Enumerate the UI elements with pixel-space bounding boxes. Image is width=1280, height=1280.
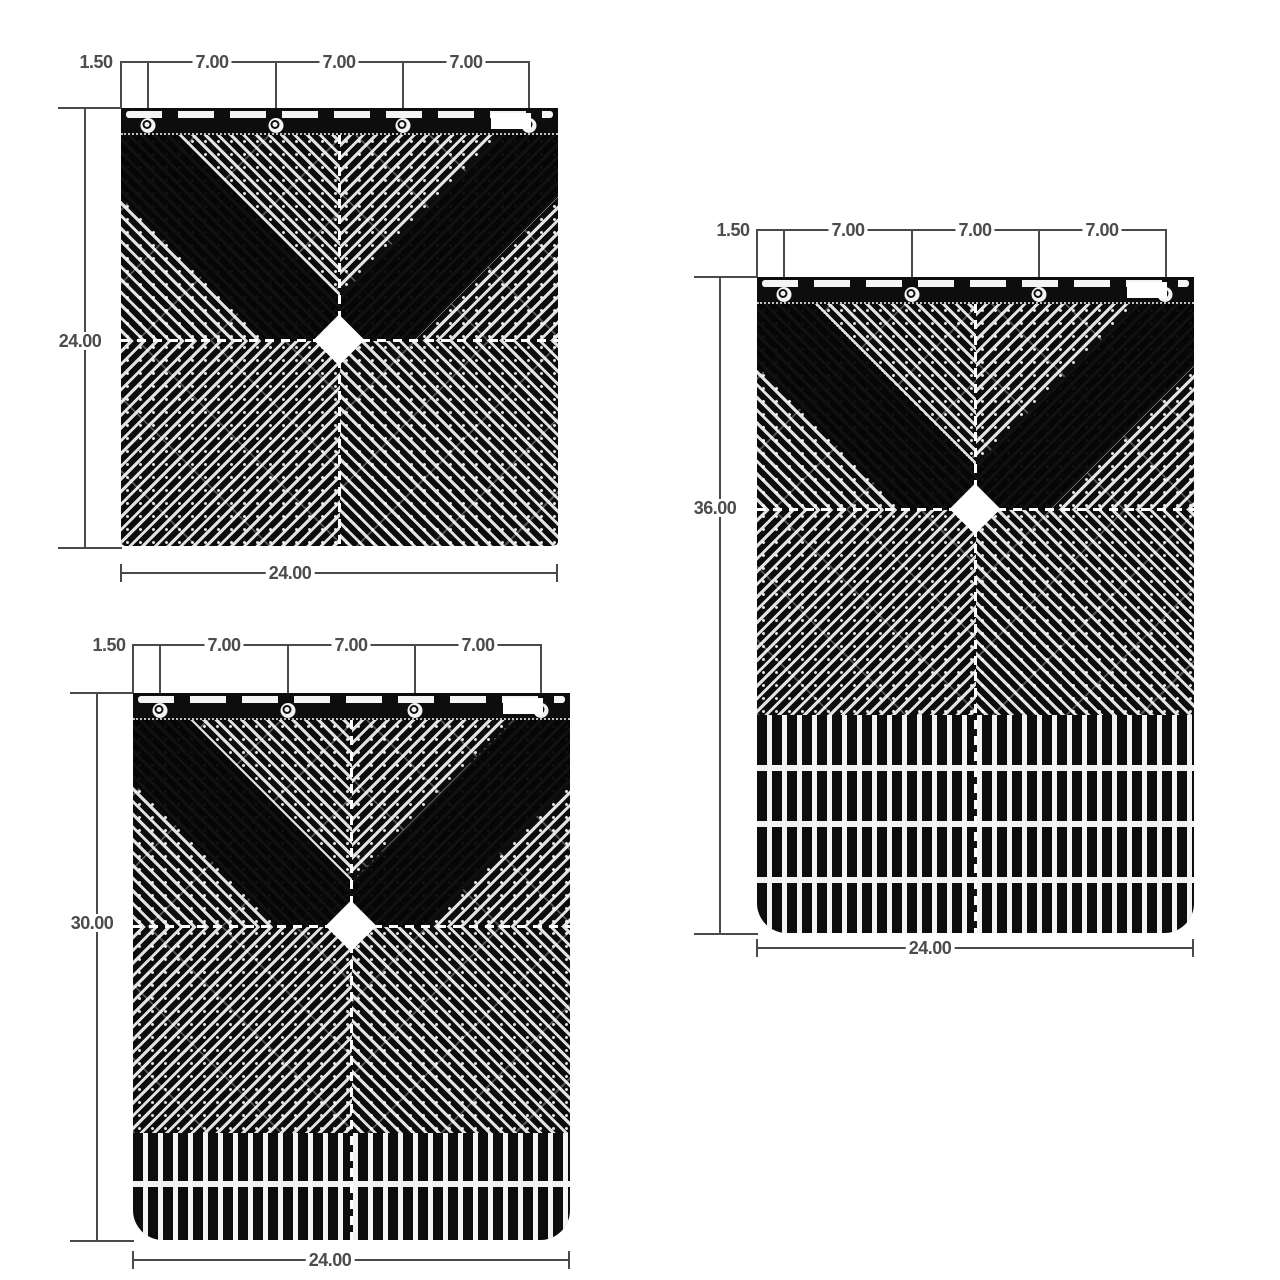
dimension-label-spacing-3: 7.00 — [1082, 221, 1121, 239]
tread-quadrant-top-left — [121, 135, 340, 341]
mudflap-24x30-body — [133, 693, 570, 1240]
tread-quadrant-bottom-right — [976, 510, 1195, 716]
bolt-hole-1 — [153, 703, 168, 718]
dimension-label-spacing-1: 7.00 — [192, 53, 231, 71]
bottom-dimension-line — [121, 572, 558, 574]
dimension-label-spacing-2: 7.00 — [331, 636, 370, 654]
mudflap-24x36-body — [757, 277, 1194, 933]
bottom-end-tick-right — [556, 564, 558, 582]
left-extension-bar-bottom — [694, 933, 758, 935]
left-dimension-line — [96, 693, 98, 1241]
dimension-label-top-offset: 1.50 — [76, 53, 115, 71]
label-plate-cutout — [1127, 282, 1167, 298]
dimension-label-top-offset: 1.50 — [713, 221, 752, 239]
label-plate-cutout — [491, 113, 531, 129]
dimension-label-width: 24.00 — [306, 1251, 355, 1269]
tread-quadrant-bottom-right — [340, 341, 559, 547]
dimension-label-spacing-1: 7.00 — [828, 221, 867, 239]
tread-quadrant-bottom-right — [352, 927, 571, 1134]
center-line-vertical — [350, 720, 353, 1240]
bolt-hole-2 — [905, 287, 920, 302]
bolt-hole-2 — [281, 703, 296, 718]
left-dimension-line — [719, 277, 721, 934]
dimension-label-spacing-3: 7.00 — [446, 53, 485, 71]
label-plate-cutout — [503, 698, 543, 714]
dimension-label-width: 24.00 — [266, 564, 315, 582]
bolt-hole-3 — [396, 118, 411, 133]
center-line-vertical — [974, 304, 977, 933]
dimension-label-height: 24.00 — [56, 332, 105, 350]
dimension-label-height: 30.00 — [68, 914, 117, 932]
mounting-strip — [133, 693, 570, 720]
mounting-slots — [126, 111, 553, 118]
bolt-hole-1 — [141, 118, 156, 133]
bottom-dimension-line — [757, 947, 1194, 949]
dimension-label-height: 36.00 — [691, 499, 740, 517]
tread-quadrant-top-right — [976, 304, 1195, 510]
tread-quadrant-top-right — [340, 135, 559, 341]
mudflap-24x24-body — [121, 108, 558, 546]
bottom-end-tick-left — [132, 1251, 134, 1269]
dimension-label-top-offset: 1.50 — [89, 636, 128, 654]
bottom-end-tick-left — [756, 939, 758, 957]
dimension-label-spacing-3: 7.00 — [458, 636, 497, 654]
left-extension-bar-top — [694, 276, 758, 278]
tread-quadrant-top-left — [757, 304, 976, 510]
left-extension-bar-bottom — [70, 1240, 134, 1242]
left-extension-bar-bottom — [58, 547, 122, 549]
mounting-slots — [138, 696, 565, 703]
bolt-hole-2 — [269, 118, 284, 133]
mounting-slots — [762, 280, 1189, 287]
extension-tick-left-edge — [120, 61, 122, 108]
technical-drawing-canvas: 1.50 7.00 7.00 7.00 24.00 24.00 — [0, 0, 1280, 1280]
tread-quadrant-bottom-left — [133, 927, 352, 1134]
bottom-end-tick-right — [1192, 939, 1194, 957]
mounting-strip — [121, 108, 558, 135]
bottom-end-tick-left — [120, 564, 122, 582]
extension-tick-left-edge — [132, 644, 134, 693]
tread-quadrant-bottom-left — [121, 341, 340, 547]
tread-quadrant-top-left — [133, 720, 352, 927]
dimension-label-spacing-1: 7.00 — [204, 636, 243, 654]
bottom-end-tick-right — [568, 1251, 570, 1269]
dimension-label-spacing-2: 7.00 — [955, 221, 994, 239]
dimension-label-spacing-2: 7.00 — [319, 53, 358, 71]
left-extension-bar-top — [58, 107, 122, 109]
left-dimension-line — [84, 108, 86, 548]
extension-tick-left-edge — [756, 229, 758, 277]
bolt-hole-1 — [777, 287, 792, 302]
tread-quadrant-bottom-left — [757, 510, 976, 716]
mounting-strip — [757, 277, 1194, 304]
tread-quadrant-top-right — [352, 720, 571, 927]
bolt-hole-3 — [1032, 287, 1047, 302]
left-extension-bar-top — [70, 692, 134, 694]
dimension-label-width: 24.00 — [906, 939, 955, 957]
bolt-hole-3 — [408, 703, 423, 718]
